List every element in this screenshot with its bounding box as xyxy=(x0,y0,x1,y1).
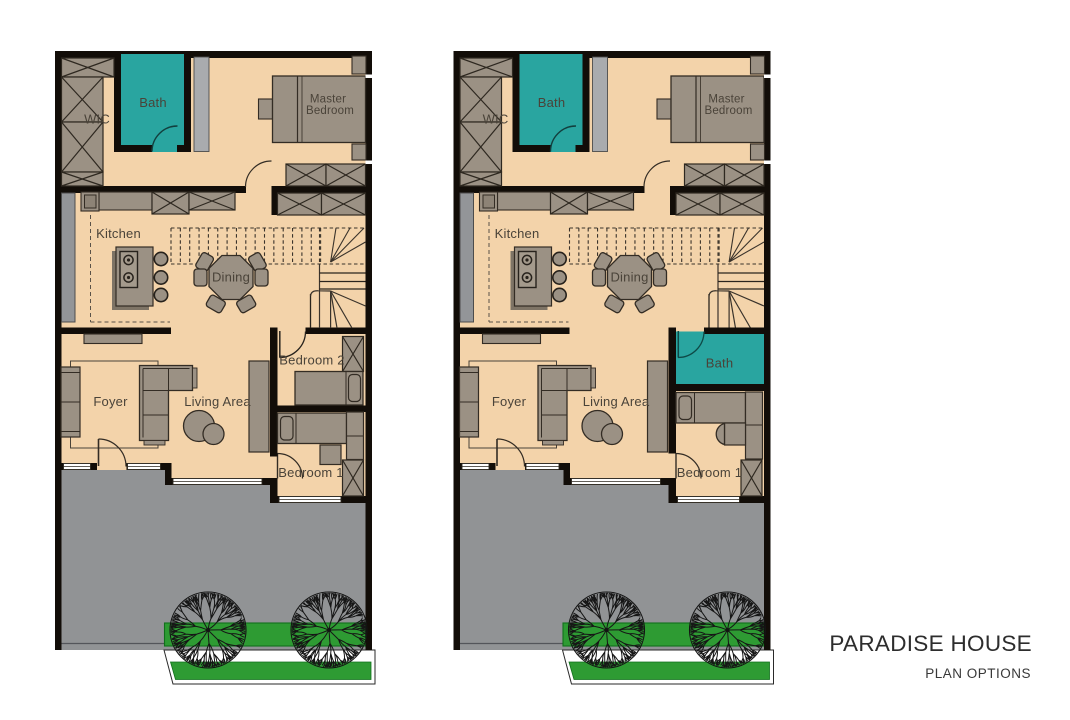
svg-text:PARADISE HOUSE: PARADISE HOUSE xyxy=(829,631,1032,656)
svg-text:Bath: Bath xyxy=(706,356,734,371)
svg-text:Bedroom 2: Bedroom 2 xyxy=(279,353,344,368)
svg-text:PLAN OPTIONS: PLAN OPTIONS xyxy=(925,666,1031,681)
